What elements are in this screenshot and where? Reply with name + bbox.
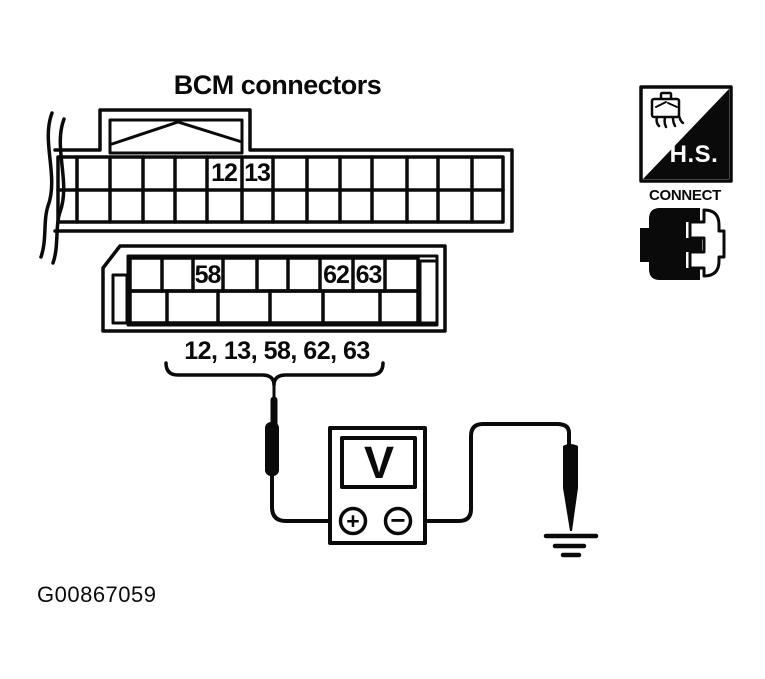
bcm-connector-top	[55, 110, 512, 231]
test-probe-icon	[563, 444, 578, 531]
minus-terminal-label: −	[385, 508, 411, 533]
cable-break-icon	[41, 113, 64, 263]
end-terminal-right	[420, 261, 437, 323]
figure-id: G00867059	[37, 582, 157, 608]
plus-terminal-label: +	[340, 509, 366, 534]
test-probe-icon	[265, 422, 279, 476]
pin-label-13: 13	[241, 159, 273, 188]
diagram-canvas: BCM connectors 12 13 58 62 63 12, 13, 58…	[0, 0, 765, 679]
connect-caption: CONNECT	[640, 187, 730, 204]
ground-icon	[546, 536, 596, 555]
hs-badge-label: H.S.	[660, 141, 728, 169]
bcm-connector-bottom	[103, 246, 445, 331]
voltmeter-display-label: V	[343, 439, 415, 487]
pin-list-label: 12, 13, 58, 62, 63	[167, 337, 387, 366]
pin-label-63: 63	[352, 261, 385, 290]
connector-latch-icon	[110, 120, 242, 153]
diagram-title: BCM connectors	[150, 70, 405, 101]
end-terminal-left	[113, 275, 127, 323]
test-lead-right	[405, 424, 578, 531]
mating-connectors-icon	[640, 208, 724, 280]
pin-label-12: 12	[206, 159, 242, 188]
pin-label-58: 58	[192, 261, 223, 290]
pin-label-62: 62	[319, 261, 353, 290]
